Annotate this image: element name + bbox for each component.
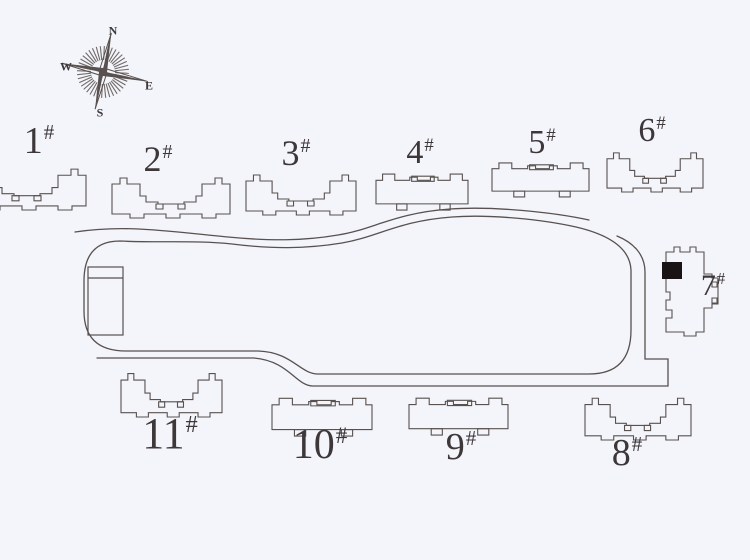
building-label-4[interactable]: 4#: [406, 136, 433, 170]
building-hash-suffix: #: [717, 269, 725, 288]
building-label-6[interactable]: 6#: [638, 114, 665, 148]
building-number: 1: [24, 120, 43, 162]
building-hash-suffix: #: [546, 125, 555, 146]
building-hash-suffix: #: [186, 411, 198, 438]
building-number: 2: [144, 139, 162, 179]
building-label-7[interactable]: 7#: [701, 271, 725, 301]
building-hash-suffix: #: [336, 422, 348, 448]
building-number: 5: [528, 124, 545, 161]
building-1[interactable]: [0, 169, 86, 210]
building-4[interactable]: [376, 174, 468, 210]
building-hash-suffix: #: [44, 120, 54, 144]
building-3[interactable]: [246, 175, 356, 215]
building-hash-suffix: #: [656, 113, 665, 134]
building-label-1[interactable]: 1#: [24, 122, 54, 160]
building-number: 7: [701, 269, 716, 302]
building-hash-suffix: #: [163, 141, 173, 163]
building-label-9[interactable]: 9#: [446, 428, 476, 466]
site-plan-drawing: [0, 0, 750, 560]
utility-structure: [88, 267, 123, 335]
building-number: 3: [282, 133, 300, 173]
site-plan-canvas: 1#2#3#4#5#6#7#8#9#10#11# NESW: [0, 0, 750, 560]
building-label-8[interactable]: 8#: [612, 434, 642, 472]
building-number: 11: [142, 409, 184, 458]
building-5[interactable]: [492, 163, 589, 197]
compass-label-n: N: [109, 24, 118, 39]
ring-road-inner-loop: [84, 216, 631, 374]
building-hash-suffix: #: [301, 135, 311, 157]
building-hash-suffix: #: [424, 135, 433, 156]
compass-label-s: S: [97, 106, 104, 121]
highlighted-unit[interactable]: [662, 262, 682, 279]
compass-label-w: W: [60, 60, 72, 75]
building-number: 6: [638, 112, 655, 149]
building-label-10[interactable]: 10#: [293, 424, 348, 466]
building-label-3[interactable]: 3#: [282, 135, 311, 171]
building-label-5[interactable]: 5#: [528, 126, 555, 160]
building-number: 10: [293, 422, 335, 468]
building-2[interactable]: [112, 178, 230, 218]
ring-road-outer-south: [97, 236, 668, 386]
building-label-2[interactable]: 2#: [144, 141, 173, 177]
building-6[interactable]: [607, 153, 703, 192]
ring-road-outer-north: [75, 208, 589, 240]
building-label-11[interactable]: 11#: [142, 412, 197, 456]
building-hash-suffix: #: [632, 432, 642, 456]
building-number: 4: [406, 134, 423, 171]
building-number: 9: [446, 426, 465, 468]
building-number: 8: [612, 432, 631, 474]
building-hash-suffix: #: [466, 426, 476, 450]
compass-label-e: E: [145, 79, 153, 94]
